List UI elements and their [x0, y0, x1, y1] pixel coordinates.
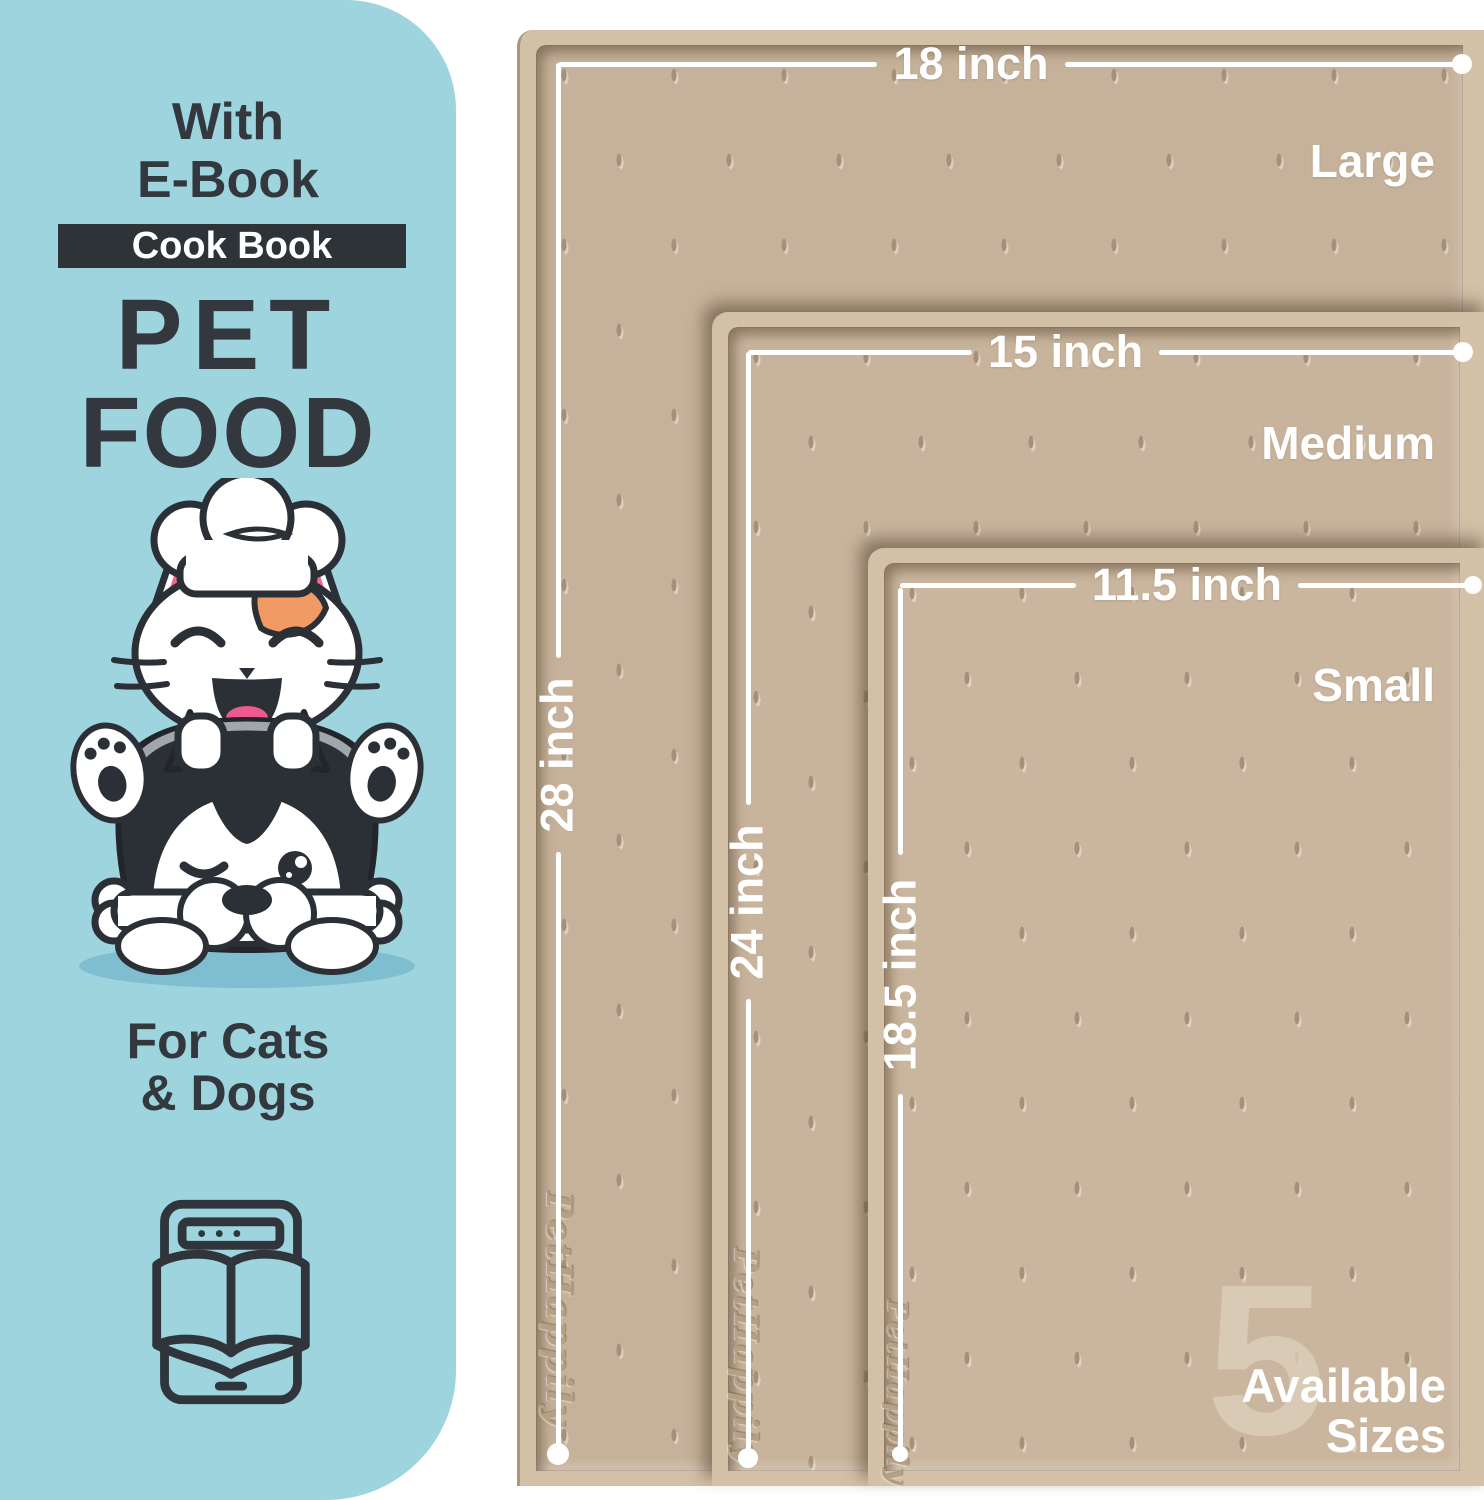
dim-line-segment — [556, 63, 561, 658]
eyebrow-line2: E-Book — [0, 150, 456, 210]
dim-line-segment — [1065, 62, 1455, 67]
dim-endpoint-dot — [1452, 54, 1472, 74]
dim-line-segment — [558, 62, 877, 67]
dim-height-small-label-wrap: 18.5 inch — [804, 867, 997, 1082]
dim-height-small-label: 18.5 inch — [874, 879, 926, 1072]
sizes-caption-line1: Available — [1241, 1358, 1446, 1413]
dim-endpoint-dot — [892, 1446, 908, 1462]
dim-height-small: 18.5 inch — [876, 588, 924, 1462]
size-label-small: Small — [1312, 658, 1435, 712]
dim-height-large: 28 inch — [534, 63, 582, 1465]
dim-width-small-label: 11.5 inch — [1092, 559, 1282, 611]
audience-line2: & Dogs — [0, 1064, 456, 1122]
dim-line-segment — [898, 1094, 903, 1449]
dim-line-segment — [900, 583, 1076, 588]
product-title-line2: FOOD — [0, 376, 456, 491]
dim-line-segment — [1159, 350, 1456, 355]
dim-height-medium-label-wrap: 24 inch — [670, 817, 825, 987]
sizes-caption-line2: Sizes — [1326, 1408, 1446, 1463]
dim-height-medium: 24 inch — [724, 352, 772, 1468]
dim-width-small: 11.5 inch — [900, 561, 1482, 609]
dim-height-large-label-wrap: 28 inch — [480, 670, 635, 840]
dim-line-segment — [746, 999, 751, 1452]
ebook-icon — [143, 1196, 319, 1408]
info-panel: With E-Book Cook Book PET FOOD — [0, 0, 456, 1500]
size-label-large: Large — [1310, 134, 1435, 188]
eyebrow-line1: With — [0, 92, 456, 152]
dim-width-large: 18 inch — [558, 40, 1472, 88]
dim-width-large-label: 18 inch — [893, 38, 1048, 90]
dim-width-medium: 15 inch — [748, 328, 1473, 376]
dim-width-medium-label: 15 inch — [988, 326, 1143, 378]
cookbook-badge: Cook Book — [58, 224, 406, 268]
product-graphic: With E-Book Cook Book PET FOOD — [0, 0, 1484, 1500]
dim-endpoint-dot — [547, 1443, 569, 1465]
dim-line-segment — [898, 588, 903, 855]
cat-dog-chef-illustration — [62, 478, 432, 993]
dim-line-segment — [748, 350, 972, 355]
dim-line-segment — [556, 852, 561, 1447]
cookbook-badge-label: Cook Book — [132, 225, 333, 268]
audience-line1: For Cats — [0, 1012, 456, 1070]
dim-endpoint-dot — [1464, 576, 1482, 594]
dim-line-segment — [1298, 583, 1467, 588]
size-label-medium: Medium — [1261, 416, 1435, 470]
dim-height-medium-label: 24 inch — [722, 824, 774, 979]
dim-endpoint-dot — [1453, 342, 1473, 362]
dim-endpoint-dot — [738, 1448, 758, 1468]
dim-height-large-label: 28 inch — [532, 677, 584, 832]
dim-line-segment — [746, 352, 751, 805]
